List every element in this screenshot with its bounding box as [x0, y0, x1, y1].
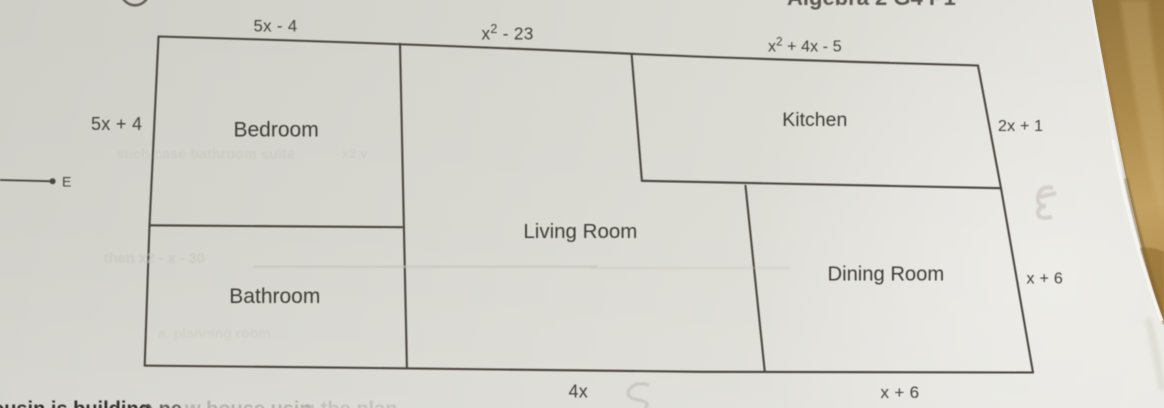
svg-text:x2 v: x2 v — [342, 146, 368, 161]
svg-text:Bathroom: Bathroom — [229, 285, 320, 308]
svg-text:a. planning room: a. planning room — [158, 325, 271, 341]
svg-text:ousin is building: ousin is building — [0, 399, 151, 408]
svg-text:5x - 4: 5x - 4 — [254, 17, 298, 36]
svg-text:x + 6: x + 6 — [881, 383, 920, 402]
svg-text:x2 - 23: x2 - 23 — [482, 22, 534, 44]
svg-text:4x: 4x — [569, 382, 589, 402]
svg-text:Bedroom: Bedroom — [234, 118, 319, 141]
svg-text:w house usin: w house usin — [184, 399, 312, 408]
svg-text:2x + 1: 2x + 1 — [998, 118, 1043, 135]
svg-text:g the plan: g the plan — [303, 399, 397, 408]
svg-text:Dining Room: Dining Room — [828, 263, 945, 285]
svg-text:such case bathroom suite: such case bathroom suite — [116, 147, 295, 163]
svg-text:a ne: a ne — [142, 399, 182, 408]
svg-text:then x2 - x - 30: then x2 - x - 30 — [104, 251, 205, 267]
svg-text:Algebra 2 G4 P1: Algebra 2 G4 P1 — [787, 0, 956, 10]
svg-text:E: E — [62, 174, 71, 190]
svg-text:x + 6: x + 6 — [1027, 271, 1064, 288]
svg-text:Kitchen: Kitchen — [782, 109, 847, 131]
svg-text:Living Room: Living Room — [523, 220, 637, 243]
svg-text:5x + 4: 5x + 4 — [91, 114, 142, 134]
